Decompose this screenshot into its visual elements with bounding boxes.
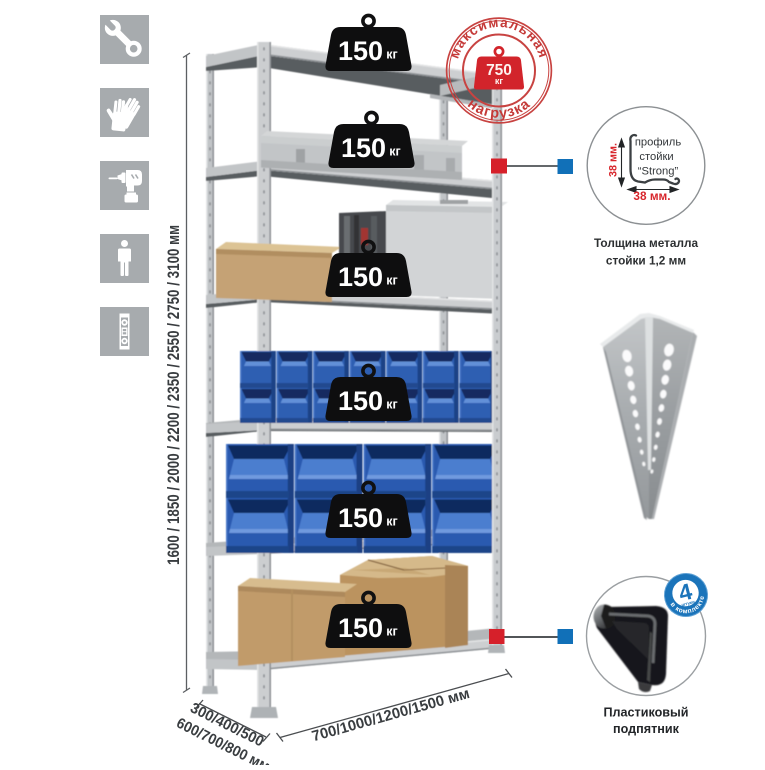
- svg-text:150: 150: [338, 36, 383, 66]
- svg-text:стойки: стойки: [639, 151, 673, 163]
- svg-text:профиль: профиль: [635, 137, 681, 149]
- svg-text:кг: кг: [386, 398, 397, 412]
- svg-text:150: 150: [341, 133, 386, 163]
- svg-text:подпятник: подпятник: [613, 722, 680, 736]
- svg-text:кг: кг: [495, 76, 504, 86]
- svg-text:кг: кг: [386, 625, 397, 639]
- svg-text:Толщина металла: Толщина металла: [594, 236, 698, 250]
- svg-text:кг: кг: [386, 515, 397, 529]
- svg-text:“Strong”: “Strong”: [638, 166, 679, 178]
- svg-text:кг: кг: [389, 145, 400, 159]
- svg-text:стойки 1,2 мм: стойки 1,2 мм: [606, 254, 686, 268]
- svg-text:1600 / 1850 / 2000 / 2200 / 23: 1600 / 1850 / 2000 / 2200 / 2350 / 2550 …: [165, 225, 183, 565]
- svg-text:кг: кг: [386, 48, 397, 62]
- svg-text:38 мм.: 38 мм.: [633, 189, 670, 203]
- svg-text:Пластиковый: Пластиковый: [603, 706, 688, 720]
- svg-text:150: 150: [338, 386, 383, 416]
- svg-text:кг: кг: [386, 274, 397, 288]
- svg-text:38 мм.: 38 мм.: [608, 143, 620, 177]
- svg-text:150: 150: [338, 262, 383, 292]
- svg-text:150: 150: [338, 613, 383, 643]
- svg-text:150: 150: [338, 503, 383, 533]
